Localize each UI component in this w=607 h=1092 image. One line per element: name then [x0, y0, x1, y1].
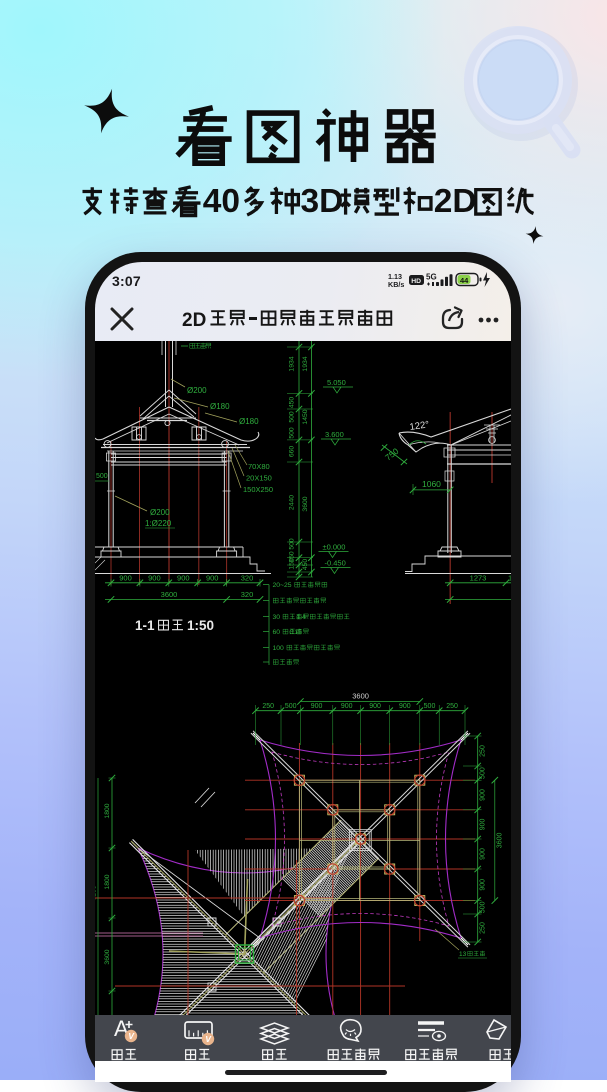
svg-text:900: 900: [206, 574, 219, 583]
svg-text:13: 13: [459, 951, 467, 958]
svg-text:3600: 3600: [302, 496, 309, 511]
svg-text:1934: 1934: [289, 356, 296, 371]
svg-text:1:Ø220: 1:Ø220: [145, 519, 172, 528]
svg-text:1-1: 1-1: [135, 618, 155, 633]
svg-text:250: 250: [262, 703, 274, 710]
svg-text:150: 150: [289, 558, 296, 570]
svg-text:150X250: 150X250: [243, 485, 273, 494]
svg-text:900: 900: [148, 574, 161, 583]
svg-text:500: 500: [285, 703, 297, 710]
svg-text:5.050: 5.050: [327, 378, 346, 387]
svg-text:12: 12: [508, 574, 511, 583]
svg-text:900: 900: [399, 703, 411, 710]
svg-text:500: 500: [480, 767, 487, 779]
svg-text:500: 500: [96, 473, 108, 480]
svg-text:3600: 3600: [104, 949, 111, 964]
svg-text:30: 30: [273, 614, 281, 621]
svg-text:1934: 1934: [302, 356, 309, 371]
svg-text:500: 500: [424, 703, 436, 710]
svg-text:900: 900: [480, 789, 487, 801]
svg-text:900: 900: [480, 848, 487, 860]
svg-text:250: 250: [446, 703, 458, 710]
svg-text:900: 900: [341, 703, 353, 710]
svg-text:3D: 3D: [301, 183, 344, 220]
svg-text:Ø200: Ø200: [187, 386, 207, 395]
svg-text:900: 900: [480, 818, 487, 830]
svg-text:500: 500: [289, 411, 296, 423]
svg-text:2440: 2440: [289, 495, 296, 510]
svg-text:Ø180: Ø180: [210, 402, 230, 411]
svg-text:500: 500: [480, 901, 487, 913]
svg-text:320: 320: [241, 574, 254, 583]
svg-text:1450: 1450: [302, 409, 309, 424]
svg-text:1273: 1273: [470, 574, 487, 583]
svg-text:1060: 1060: [422, 479, 441, 489]
svg-text:2D: 2D: [182, 310, 206, 331]
svg-text:1800: 1800: [104, 803, 111, 818]
svg-text:2D: 2D: [434, 183, 477, 220]
svg-text:3600: 3600: [497, 833, 504, 849]
svg-text:KB/s: KB/s: [388, 280, 404, 289]
svg-text:5G: 5G: [426, 273, 437, 282]
svg-text:250: 250: [480, 922, 487, 934]
svg-text:Ø180: Ø180: [239, 417, 259, 426]
svg-text:44: 44: [460, 276, 469, 285]
svg-text:-0.450: -0.450: [325, 559, 346, 568]
svg-text:900: 900: [177, 574, 190, 583]
svg-text:900: 900: [311, 703, 323, 710]
svg-text:660: 660: [289, 446, 296, 458]
svg-text:900: 900: [369, 703, 381, 710]
svg-text:3600: 3600: [161, 590, 178, 599]
svg-text:1:50: 1:50: [187, 618, 214, 633]
svg-text:1800: 1800: [104, 874, 111, 889]
svg-text:900: 900: [119, 574, 132, 583]
svg-text:20~25: 20~25: [273, 582, 292, 589]
svg-text:HD: HD: [411, 278, 421, 285]
svg-text:100: 100: [273, 645, 285, 652]
svg-text:450: 450: [289, 397, 296, 409]
svg-text:60: 60: [273, 629, 281, 636]
svg-text:Ø200: Ø200: [150, 508, 170, 517]
svg-text:±0.000: ±0.000: [323, 543, 346, 552]
svg-text:40: 40: [203, 183, 240, 220]
svg-text:3600: 3600: [352, 692, 369, 701]
svg-text:500: 500: [289, 427, 296, 439]
svg-text:500: 500: [289, 538, 296, 550]
svg-text:20X150: 20X150: [246, 474, 272, 483]
svg-text:3.600: 3.600: [325, 430, 344, 439]
svg-text:450: 450: [302, 559, 309, 571]
svg-text:70X80: 70X80: [248, 462, 270, 471]
svg-text:900: 900: [480, 879, 487, 891]
svg-text:250: 250: [480, 745, 487, 757]
svg-text:320: 320: [241, 590, 254, 599]
svg-text:7200: 7200: [95, 885, 98, 900]
